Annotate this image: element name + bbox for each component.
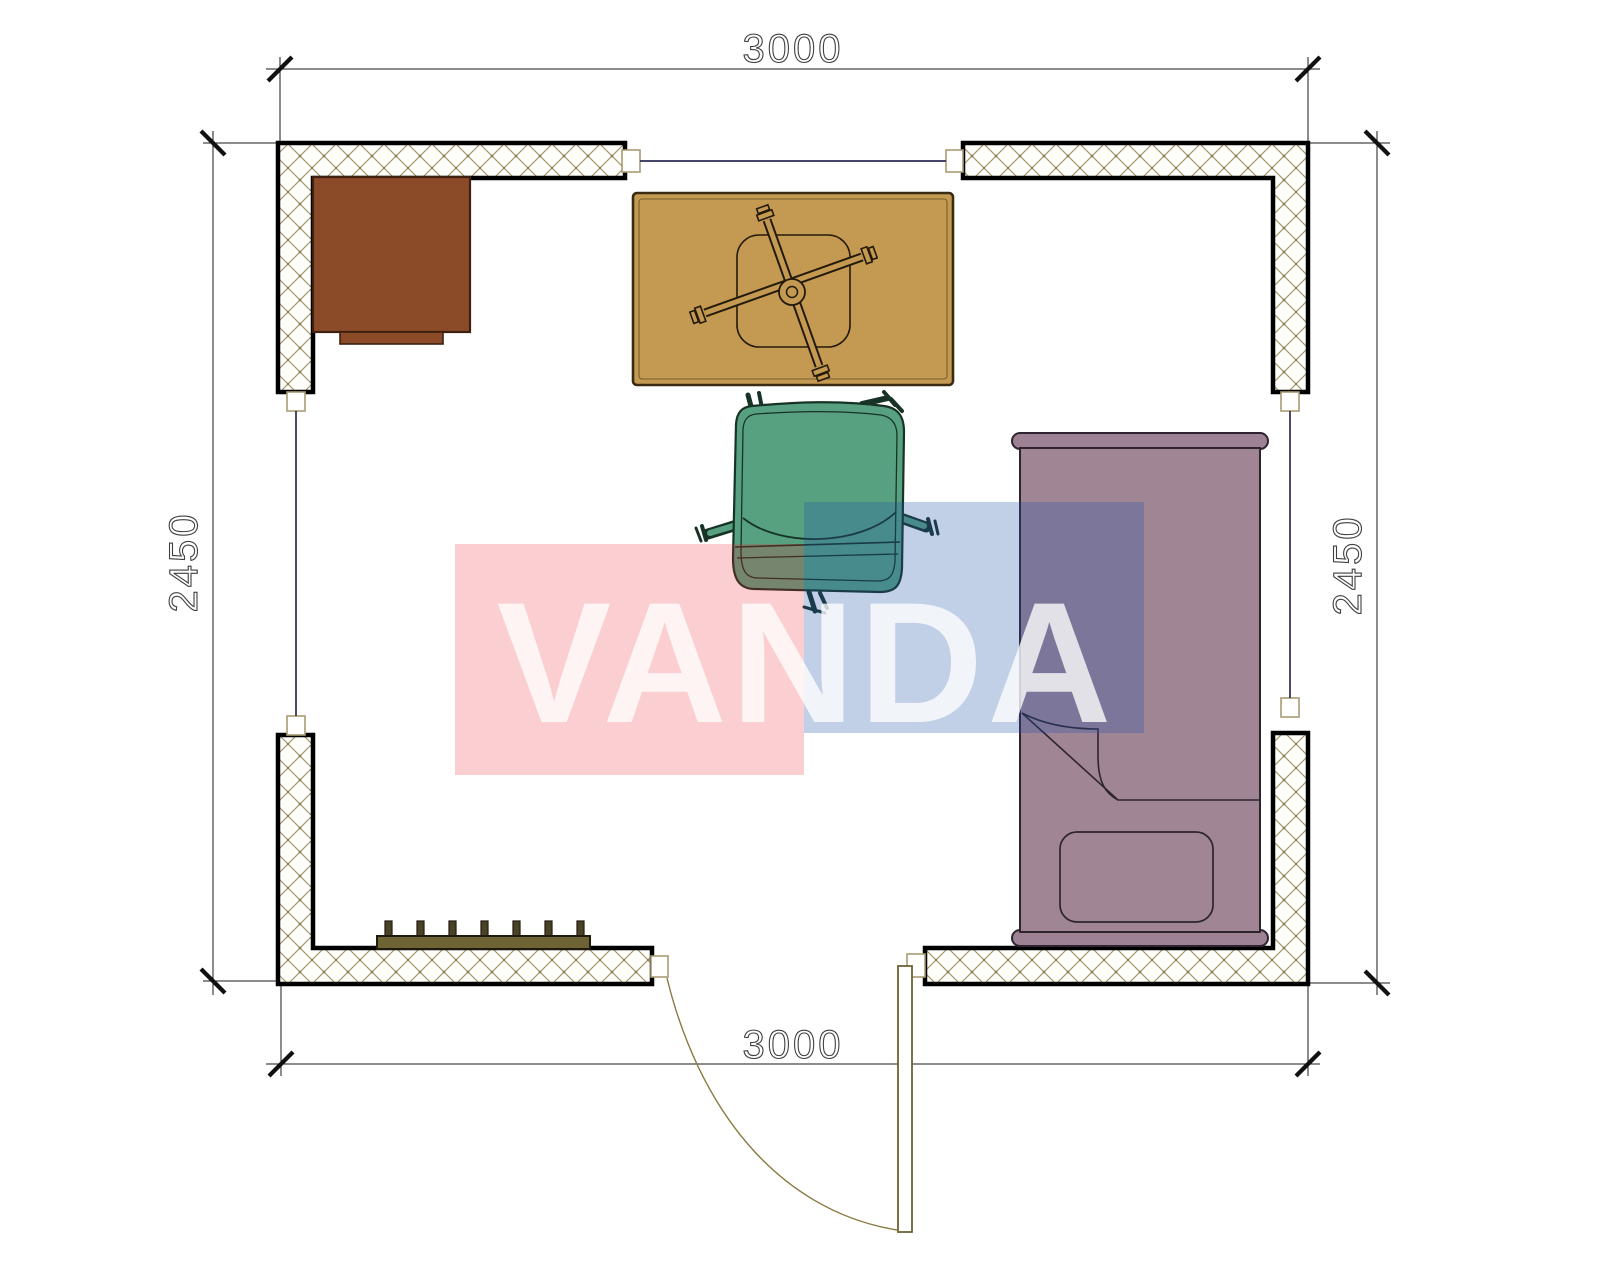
window-jamb [1281, 698, 1299, 717]
floor-plan-drawing: 3000 3000 2450 2450 [0, 0, 1600, 1280]
dim-label-right: 2450 [1326, 515, 1370, 616]
dim-label-top: 3000 [743, 27, 844, 71]
dim-label-left: 2450 [162, 512, 206, 613]
floor-plan-canvas: 3000 3000 2450 2450 [0, 0, 1600, 1280]
window-jamb [287, 716, 305, 735]
door [667, 966, 912, 1232]
radiator-fins [385, 921, 584, 937]
bed-headboard [1012, 433, 1268, 449]
cabinet-front [340, 332, 443, 344]
dim-label-bottom: 3000 [743, 1023, 844, 1067]
window-jamb [287, 392, 305, 411]
window-jamb [622, 150, 640, 172]
radiator-body [377, 936, 590, 949]
window-jamb [1281, 392, 1299, 411]
radiator [377, 921, 590, 949]
door-jamb [651, 956, 668, 977]
wall-top-right [963, 143, 1308, 392]
door-swing-arc [667, 978, 897, 1230]
cabinet [313, 177, 470, 344]
watermark-text: VANDA [497, 567, 1116, 759]
door-leaf [898, 966, 912, 1232]
window-jamb [946, 150, 963, 172]
